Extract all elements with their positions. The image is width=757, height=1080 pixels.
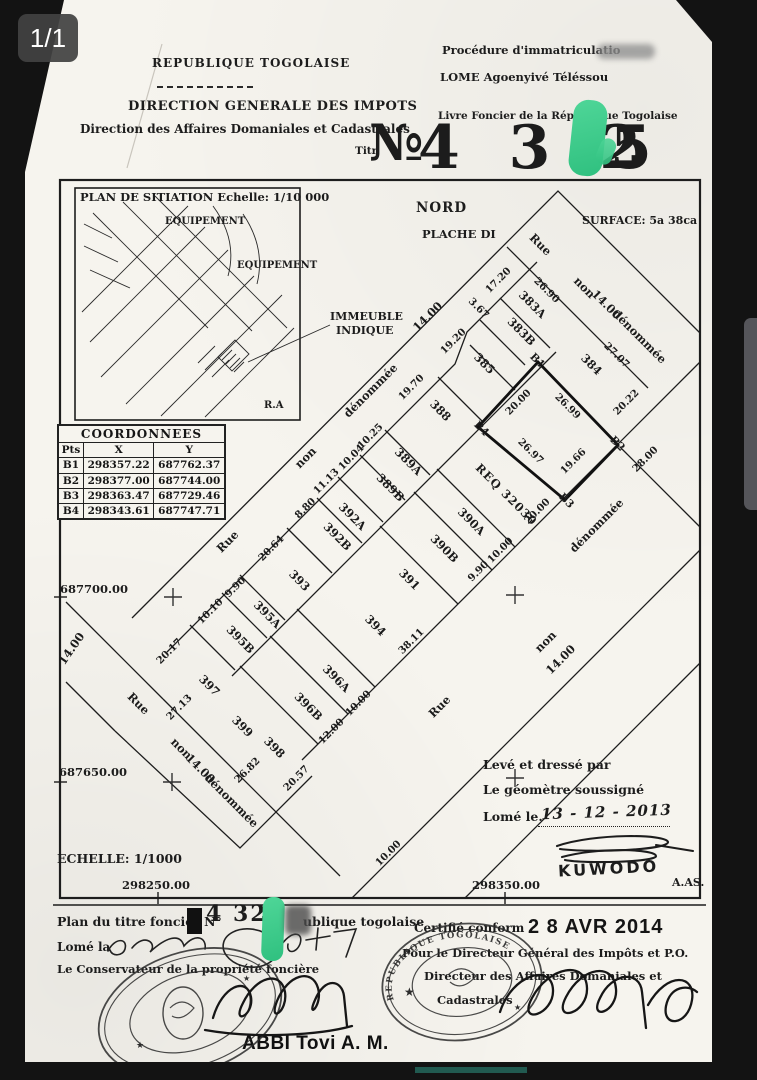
plan-label: REQ 32030 bbox=[473, 462, 539, 528]
plan-label: 9.90 bbox=[467, 560, 491, 584]
surveyor-line-1: Levé et dressé par bbox=[483, 758, 610, 772]
north-label: NORD bbox=[416, 201, 467, 216]
plan-label: 395B bbox=[224, 624, 256, 656]
page-indicator-text: 1/1 bbox=[30, 23, 66, 54]
plan-label: 389A bbox=[392, 446, 423, 477]
cell: B2 bbox=[58, 473, 83, 488]
footer-lome-la: Lomé la bbox=[57, 941, 110, 954]
footer-plan-number: 4 32 bbox=[206, 902, 268, 926]
plan-label: 10.10 bbox=[196, 597, 225, 626]
surveyor-line-3: Lomé le. bbox=[483, 810, 543, 824]
cell: 687762.37 bbox=[154, 458, 225, 473]
cell: 298363.47 bbox=[83, 488, 154, 503]
plan-label: non bbox=[533, 629, 558, 654]
right-stamp-star-icon: ★ bbox=[404, 985, 415, 999]
svg-text:REPUBLIQUE TOGOLAISE: REPUBLIQUE TOGOLAISE bbox=[385, 930, 512, 1001]
plan-label: 396B bbox=[292, 691, 324, 723]
cell: 298377.00 bbox=[83, 473, 154, 488]
table-row: B2298377.00687744.00 bbox=[58, 473, 225, 488]
cell: B4 bbox=[58, 503, 83, 519]
plan-label: 10.00 bbox=[344, 689, 373, 718]
plan-label: 26.82 bbox=[233, 756, 262, 785]
plan-label: 399 bbox=[229, 714, 254, 739]
plan-label: Rue bbox=[527, 232, 553, 258]
footer-pour-line: Pour le Directeur Général des Impôts et … bbox=[402, 947, 688, 960]
plan-label: Rue bbox=[125, 691, 151, 717]
plan-label: 12.00 bbox=[317, 717, 346, 746]
header-separator bbox=[157, 86, 253, 88]
ink-block-mark bbox=[187, 908, 202, 934]
plan-label: 392B bbox=[321, 521, 353, 553]
green-marker-bottom bbox=[261, 897, 285, 962]
photo-edge-streak bbox=[415, 1067, 527, 1073]
plan-label: B1 bbox=[528, 352, 547, 371]
surface-label: SURFACE: 5a 38ca bbox=[582, 215, 697, 227]
immeuble-label-2: INDIQUE bbox=[336, 325, 393, 337]
plan-label: 20.64 bbox=[257, 534, 286, 563]
footer-dir-line: Directeur des Affaires Domaniales et bbox=[424, 970, 662, 983]
plan-label: 394 bbox=[362, 613, 387, 638]
situation-title: PLAN DE SITIATION Echelle: 1/10 000 bbox=[80, 191, 295, 204]
plan-label: 393 bbox=[286, 568, 311, 593]
cell: 687729.46 bbox=[154, 488, 225, 503]
plan-label: 27.07 bbox=[601, 341, 630, 370]
plan-label: Rue bbox=[215, 529, 241, 555]
plan-label: 390A bbox=[455, 506, 486, 537]
plan-label: 14.00 bbox=[57, 631, 87, 667]
plan-label: 20.00 bbox=[504, 388, 533, 417]
plan-label: 9.90 bbox=[224, 576, 248, 600]
grid-y-687700: 687700.00 bbox=[60, 583, 128, 596]
coordinates-title: COORDONNEES bbox=[58, 425, 225, 443]
cell: B3 bbox=[58, 488, 83, 503]
plan-label: 20.22 bbox=[612, 388, 641, 417]
cell: B1 bbox=[58, 458, 83, 473]
location-line: LOME Agoenyivé Téléssou bbox=[440, 71, 608, 84]
plan-label: non bbox=[293, 445, 318, 470]
plan-label: 26.97 bbox=[515, 437, 544, 466]
surveyor-line-2: Le géomètre soussigné bbox=[483, 783, 644, 797]
grid-y-687650: 687650.00 bbox=[59, 766, 127, 779]
footer-cad-line: Cadastrales bbox=[437, 994, 513, 1007]
plan-label: 384 bbox=[578, 352, 603, 377]
plan-label: 19.70 bbox=[397, 373, 426, 402]
header-republic: REPUBLIQUE TOGOLAISE bbox=[152, 57, 350, 70]
plan-label: 3.67 bbox=[466, 297, 490, 321]
scale-label: ECHELLE: 1/1000 bbox=[57, 852, 182, 866]
col-pts: Pts bbox=[58, 443, 83, 458]
planche-label: PLACHE DI bbox=[422, 228, 496, 241]
plan-label: 388 bbox=[427, 398, 452, 423]
footer-plan-suffix: ublique togolaise bbox=[303, 915, 424, 929]
plan-label: dénommée bbox=[202, 772, 260, 830]
left-stamp-star-icon: ★ bbox=[136, 1041, 144, 1051]
situation-ra-label: R.A bbox=[264, 400, 284, 411]
conservateur-signature bbox=[205, 976, 352, 1035]
coordinates-table: COORDONNEES Pts X Y B1298357.22687762.37… bbox=[57, 424, 226, 520]
cell: 687747.71 bbox=[154, 503, 225, 519]
cell: 298343.61 bbox=[83, 503, 154, 519]
plan-label: 14.00 bbox=[544, 643, 578, 677]
plan-label: 397 bbox=[196, 673, 221, 698]
plan-label: 17.20 bbox=[484, 266, 513, 295]
plan-label: 11.13 bbox=[312, 467, 341, 496]
plan-label: 390B bbox=[428, 533, 460, 565]
plan-label: 10.00 bbox=[486, 536, 515, 565]
plan-label: 20.57 bbox=[282, 764, 311, 793]
redaction-blur-bottom bbox=[285, 905, 311, 935]
plan-label: 395A bbox=[251, 599, 282, 630]
plan-label: dénommée bbox=[568, 497, 626, 555]
plan-label: 391 bbox=[396, 567, 421, 592]
plan-label: 19.20 bbox=[439, 327, 468, 356]
immeuble-label-1: IMMEUBLE bbox=[330, 311, 403, 323]
cell: 687744.00 bbox=[154, 473, 225, 488]
footer-conservateur: Le Conservateur de la propriété foncière bbox=[57, 963, 319, 976]
situation-map-lines bbox=[82, 196, 330, 417]
date-stamp: 2 8 AVR 2014 bbox=[528, 916, 663, 938]
grid-x-298350: 298350.00 bbox=[472, 879, 540, 892]
table-row: B4298343.61687747.71 bbox=[58, 503, 225, 519]
col-y: Y bbox=[154, 443, 225, 458]
plan-label: 10.00 bbox=[374, 839, 403, 868]
table-row: B3298363.47687729.46 bbox=[58, 488, 225, 503]
situation-equipement-1: EQUIPEMENT bbox=[165, 216, 245, 227]
plan-label: 27.13 bbox=[165, 693, 194, 722]
plan-label: 38.11 bbox=[397, 627, 426, 656]
procedure-line: Procédure d'immatriculatio bbox=[442, 44, 620, 57]
plan-label: dénommée bbox=[342, 362, 400, 420]
redaction-blur-top bbox=[597, 44, 655, 59]
plan-label: 28.00 bbox=[631, 445, 660, 474]
plan-label: 19.66 bbox=[559, 447, 588, 476]
scrollbar-thumb[interactable] bbox=[744, 318, 757, 510]
plan-label: 383B bbox=[505, 316, 537, 348]
plan-label: Rue bbox=[427, 694, 453, 720]
col-x: X bbox=[83, 443, 154, 458]
surveyor-name-handwritten: KUWODO bbox=[558, 857, 660, 880]
plan-label: 392A bbox=[336, 501, 367, 532]
plan-label: 8.80 bbox=[294, 497, 318, 521]
titre-numero-prefix: № bbox=[369, 116, 423, 170]
cell: 298357.22 bbox=[83, 458, 154, 473]
plan-label: 398 bbox=[261, 735, 286, 760]
viewer-stage: REPUBLIQUE TOGOLAISE DIRECTION GENERALE … bbox=[0, 0, 757, 1080]
right-stamp-star-icon: ★ bbox=[514, 1003, 521, 1012]
plan-label: 26.99 bbox=[552, 392, 581, 421]
aas-label: A.AS. bbox=[672, 877, 704, 889]
plan-label: B3 bbox=[557, 492, 576, 511]
titre-numero-right: 5 bbox=[610, 118, 652, 178]
plan-label: 20.17 bbox=[155, 637, 184, 666]
header-subdirection: Direction des Affaires Domaniales et Cad… bbox=[80, 123, 410, 136]
situation-equipement-2: EQUIPEMENT bbox=[237, 260, 317, 271]
date-dotted-line bbox=[538, 808, 670, 827]
page-indicator-badge: 1/1 bbox=[18, 14, 78, 62]
footer-signer-name: ABBI Tovi A. M. bbox=[242, 1034, 389, 1055]
plan-label: B4 bbox=[472, 420, 491, 439]
plan-label: B2 bbox=[608, 435, 627, 454]
grid-x-298250: 298250.00 bbox=[122, 879, 190, 892]
plan-label: 389B bbox=[374, 472, 406, 504]
right-stamp-arc-text: REPUBLIQUE TOGOLAISE bbox=[385, 930, 512, 1001]
plan-label: 10.04 bbox=[337, 443, 366, 472]
plan-label: 14.00 bbox=[411, 300, 445, 334]
footer-certifie: Certifié conform bbox=[414, 922, 524, 935]
plan-label: 396A bbox=[320, 663, 351, 694]
plan-label: 385 bbox=[471, 351, 496, 376]
table-row: B1298357.22687762.37 bbox=[58, 458, 225, 473]
document-page: REPUBLIQUE TOGOLAISE DIRECTION GENERALE … bbox=[0, 0, 757, 1080]
